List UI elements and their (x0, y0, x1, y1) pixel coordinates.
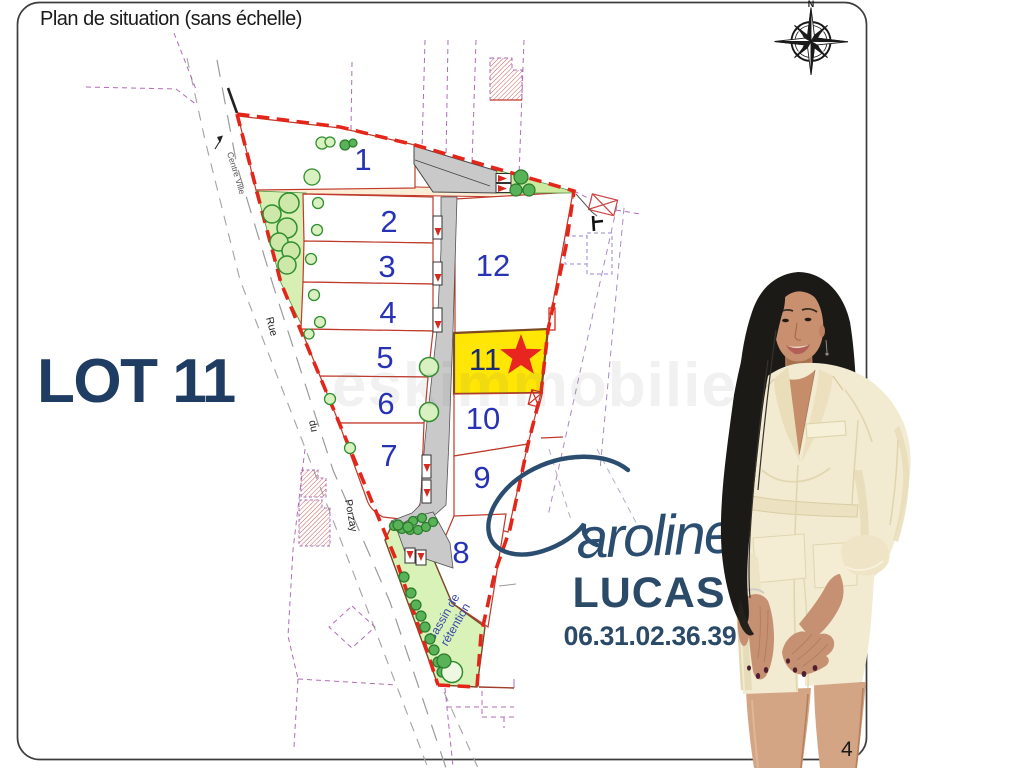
svg-text:Plan de situation (sans échell: Plan de situation (sans échelle) (40, 8, 302, 30)
svg-text:LUCAS: LUCAS (572, 569, 725, 617)
svg-text:4: 4 (379, 295, 396, 330)
svg-text:5: 5 (376, 340, 393, 375)
svg-text:8: 8 (452, 535, 469, 570)
svg-text:eskimmobilier: eskimmobilier (332, 351, 762, 420)
svg-text:06.31.02.36.39: 06.31.02.36.39 (564, 621, 737, 651)
svg-text:9: 9 (473, 460, 490, 495)
svg-text:aroline: aroline (575, 502, 735, 571)
svg-text:LOT 11: LOT 11 (37, 347, 235, 416)
svg-text:1: 1 (354, 142, 371, 177)
svg-text:12: 12 (476, 248, 510, 283)
svg-text:4: 4 (841, 738, 853, 761)
svg-text:6: 6 (377, 386, 394, 421)
svg-text:7: 7 (380, 438, 397, 473)
svg-text:11: 11 (469, 342, 501, 377)
svg-text:N: N (808, 0, 815, 9)
svg-text:10: 10 (466, 401, 500, 436)
svg-text:2: 2 (380, 204, 397, 239)
svg-text:3: 3 (378, 249, 395, 284)
